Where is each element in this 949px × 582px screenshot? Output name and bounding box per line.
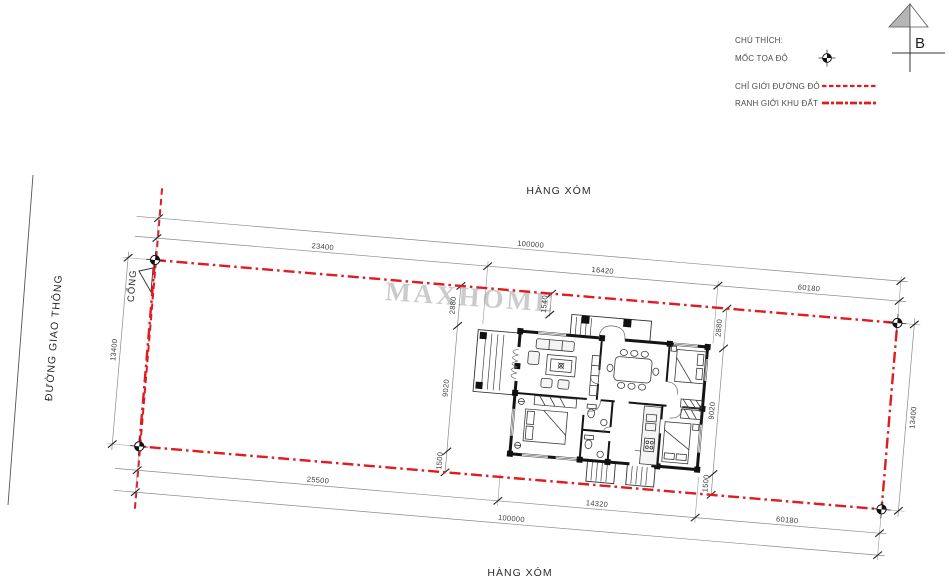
dim-bottom-seg3: 60180 bbox=[776, 514, 799, 525]
legend-redline-label: CHỈ GIỚI ĐƯỜNG ĐỎ bbox=[735, 82, 820, 91]
legend-boundary-label: RANH GIỚI KHU ĐẤT bbox=[735, 98, 818, 108]
legend-marker-label: MỐC TỌA ĐỘ bbox=[735, 53, 788, 63]
north-label: B bbox=[915, 35, 925, 52]
neighbor-bottom-label: HÀNG XÓM bbox=[487, 566, 552, 579]
dim-right-chain: 2880 9020 1500 bbox=[700, 304, 731, 500]
dim-top-seg2: 16420 bbox=[591, 265, 614, 276]
dim-porch-label: 1540 bbox=[539, 295, 549, 314]
dim-top-seg1: 23400 bbox=[311, 241, 334, 252]
dim-bottom-seg2: 14320 bbox=[585, 498, 608, 509]
site-plan-page: MAXHOME ĐƯỜNG GIAO THÔNG CỔNG HÀNG XÓM H… bbox=[0, 0, 949, 582]
watermark-text: MAXHOME bbox=[384, 276, 557, 318]
dim-bottom-total: 100000 bbox=[498, 513, 525, 524]
legend-survey-marker-icon bbox=[818, 49, 835, 66]
dim-right-rear: 1500 bbox=[700, 474, 710, 493]
gate-arrow-icon bbox=[139, 268, 153, 292]
road-edge-line bbox=[8, 175, 33, 505]
dim-right-width: 13400 bbox=[881, 317, 926, 518]
dim-left-rear: 1500 bbox=[434, 451, 444, 470]
dim-top-seg3: 60180 bbox=[797, 282, 820, 293]
north-arrow: B bbox=[889, 4, 945, 72]
neighbor-top-label: HÀNG XÓM bbox=[526, 184, 591, 197]
plot-frame: 100000 23400 16420 60180 25500 14320 601… bbox=[96, 185, 931, 574]
dim-top-total: 100000 bbox=[517, 239, 544, 250]
dim-right-depth: 9020 bbox=[707, 401, 717, 420]
north-arrow-left-half bbox=[889, 4, 910, 27]
dim-left-depth: 9020 bbox=[440, 379, 450, 398]
dim-bottom: 25500 14320 60180 100000 bbox=[113, 428, 890, 561]
north-arrow-right-half bbox=[910, 4, 928, 27]
road-label: ĐƯỜNG GIAO THÔNG bbox=[42, 274, 65, 402]
dim-right-width-label: 13400 bbox=[907, 406, 918, 429]
dim-left-width-label: 13400 bbox=[108, 338, 119, 361]
legend-title: CHÚ THÍCH: bbox=[735, 36, 783, 45]
dim-bottom-seg1: 25500 bbox=[306, 475, 329, 486]
dim-right-front: 2880 bbox=[714, 319, 724, 338]
house-plan bbox=[466, 307, 712, 491]
dim-left-front: 2880 bbox=[447, 296, 457, 315]
site-plan-drawing: MAXHOME ĐƯỜNG GIAO THÔNG CỔNG HÀNG XÓM H… bbox=[0, 0, 949, 582]
legend: CHÚ THÍCH: MỐC TỌA ĐỘ CHỈ GIỚI ĐƯỜNG ĐỎ … bbox=[735, 36, 878, 108]
